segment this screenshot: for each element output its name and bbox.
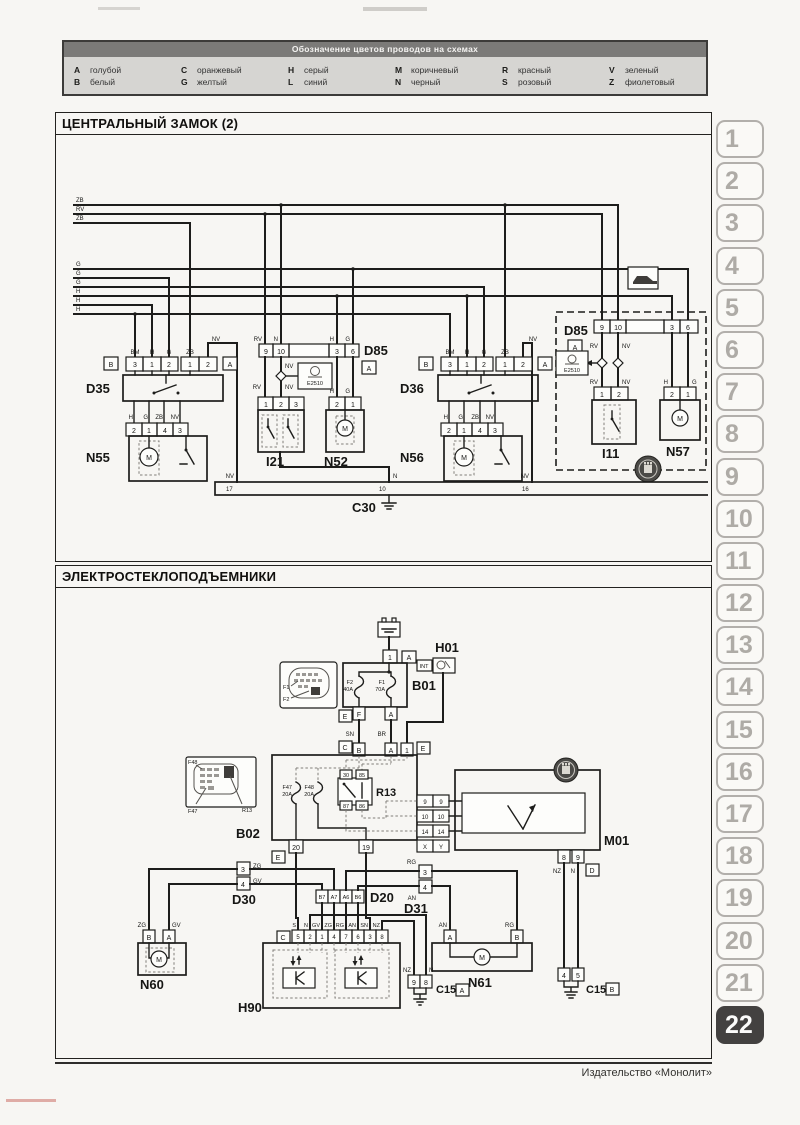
connector-id: A xyxy=(228,362,233,369)
wire-color-label: NV xyxy=(171,415,179,421)
wire-color-label: ZB xyxy=(471,415,479,421)
fuse-rating: 70A xyxy=(375,687,385,693)
color-name: белый xyxy=(90,76,115,88)
publisher-credit: Издательство «Монолит» xyxy=(402,1067,712,1079)
component-name: C15 xyxy=(436,984,456,996)
wire-color-label: G xyxy=(345,389,350,395)
component-name: I11 xyxy=(602,446,619,461)
wire-color-label: G xyxy=(143,415,148,421)
fuse-label: F47 xyxy=(283,785,292,791)
pin-number: 3 xyxy=(423,870,427,877)
component-name: D30 xyxy=(232,892,256,907)
pin-number: 1 xyxy=(351,402,355,409)
chapter-tab-11: 11 xyxy=(716,542,764,580)
pin-number: 1 xyxy=(147,428,151,435)
color-name: коричневый xyxy=(411,64,458,76)
component-h90: S N GV ZG RG AN SN NZ C 5 2 1 4 7 6 3 8 xyxy=(238,923,400,1015)
wire-color-label: SN xyxy=(346,732,354,738)
component-name: R13 xyxy=(376,787,396,799)
pin-number: 3 xyxy=(335,349,339,356)
diagram-title: ЦЕНТРАЛЬНЫЙ ЗАМОК (2) xyxy=(56,113,711,135)
color-name: красный xyxy=(518,64,551,76)
wire-color-label: G xyxy=(345,337,350,343)
component-name: N57 xyxy=(666,444,690,459)
component-name: C30 xyxy=(352,500,376,515)
wire-color-label: NV xyxy=(285,385,293,391)
pin-number: 4 xyxy=(562,973,566,980)
component-n60: ZG GV B A M N60 xyxy=(138,923,186,992)
color-name: зеленый xyxy=(625,64,659,76)
component-name: N55 xyxy=(86,450,110,465)
chapter-tab-10: 10 xyxy=(716,500,764,538)
wire-color-label: G xyxy=(692,380,697,386)
pin-number: 9 xyxy=(576,855,580,862)
pin-number: B6 xyxy=(355,895,362,901)
wire-color-label: H xyxy=(330,389,334,395)
chapter-tab-17: 17 xyxy=(716,795,764,833)
component-b01: F2 40A F1 70A B01 F A E xyxy=(339,663,436,722)
wire-color-label: ZB xyxy=(76,198,84,204)
connector-id: C xyxy=(342,745,347,752)
pin-number: 5 xyxy=(576,973,580,980)
pin-number: 1 xyxy=(264,402,268,409)
connector-id: B xyxy=(424,362,429,369)
chapter-tab-strip: 1 2 3 4 5 6 7 8 9 10 11 12 13 14 15 16 1… xyxy=(716,120,764,1044)
pin-number: 1 xyxy=(405,748,409,755)
chapter-tab-2: 2 xyxy=(716,162,764,200)
chapter-tab-15: 15 xyxy=(716,711,764,749)
ground-icon xyxy=(414,988,426,1005)
component-name: D35 xyxy=(86,381,110,396)
pin-number: 3 xyxy=(493,428,497,435)
ground-icon xyxy=(564,981,578,998)
color-name: синий xyxy=(304,76,327,88)
pin-number: 86 xyxy=(359,804,365,810)
wire-color-label: GV xyxy=(172,923,181,929)
connector-id: A xyxy=(543,362,548,369)
color-code: N xyxy=(395,76,411,88)
chapter-tab-16: 16 xyxy=(716,753,764,791)
component-name: D85 xyxy=(364,343,388,358)
wire-color-label: G xyxy=(167,350,172,356)
component-n55: 2 1 4 3 M N55 xyxy=(86,423,207,481)
color-code: H xyxy=(288,64,304,76)
pin-number: 2 xyxy=(132,428,136,435)
pin-number: B xyxy=(147,935,152,942)
pin-number: 1 xyxy=(465,362,469,369)
pin-number: A xyxy=(167,935,172,942)
pin-number: 85 xyxy=(359,773,365,779)
pin-number: 4 xyxy=(241,882,245,889)
color-code: M xyxy=(395,64,411,76)
pin-number: 8 xyxy=(562,855,566,862)
chapter-tab-22-active: 22 xyxy=(716,1006,764,1044)
central-lock-schematic: ZB RV ZB G G G H H H BM H G ZB NV B 3 1 … xyxy=(56,135,708,559)
fuse-label: F48 xyxy=(188,760,197,766)
component-n56: 2 1 4 3 M N56 xyxy=(400,423,522,481)
pin-number: 3 xyxy=(294,402,298,409)
component-name: H90 xyxy=(238,1000,262,1015)
wire-color-label: H xyxy=(465,350,469,356)
fuse-label: F1 xyxy=(379,680,385,686)
connector-id: B xyxy=(610,987,615,994)
wire-color-label: H xyxy=(330,337,334,343)
pin-number: 17 xyxy=(226,487,233,493)
motor-icon: M xyxy=(677,416,683,423)
pin-number: 10 xyxy=(277,349,285,356)
wire-color-label: NZ xyxy=(373,923,381,929)
connector-id: C xyxy=(280,935,285,942)
pin-number: 16 xyxy=(522,487,529,493)
chapter-tab-3: 3 xyxy=(716,204,764,242)
component-name: N56 xyxy=(400,450,424,465)
pin-number: 4 xyxy=(163,428,167,435)
wire-color-label: NV xyxy=(622,344,630,350)
wire-color-label: ZG xyxy=(138,923,147,929)
color-name: фиолетовый xyxy=(625,76,675,88)
pin-number: 3 xyxy=(241,867,245,874)
wire-color-label: BM xyxy=(131,350,140,356)
pin-number: F xyxy=(357,712,361,719)
chapter-tab-8: 8 xyxy=(716,415,764,453)
chapter-tab-20: 20 xyxy=(716,922,764,960)
component-name: D36 xyxy=(400,381,424,396)
legend-col: Aголубой Bбелый xyxy=(64,64,171,88)
motor-icon: M xyxy=(461,455,467,462)
chapter-tab-12: 12 xyxy=(716,584,764,622)
color-name: черный xyxy=(411,76,440,88)
connector-id: E xyxy=(276,855,281,862)
wire-color-label: NV xyxy=(285,364,293,370)
connector-id: Y xyxy=(439,845,443,851)
connector-id: A xyxy=(460,988,465,995)
color-code: B xyxy=(74,76,90,88)
pin-number: A xyxy=(389,712,394,719)
component-name: C15 xyxy=(586,984,606,996)
component-name: B01 xyxy=(412,678,436,693)
chapter-tab-19: 19 xyxy=(716,879,764,917)
wire-color-label: RV xyxy=(253,385,261,391)
pin-number: 10 xyxy=(379,487,386,493)
chapter-tab-14: 14 xyxy=(716,668,764,706)
bus-wires xyxy=(74,205,688,357)
wire-color-label: G xyxy=(76,262,81,268)
chapter-tab-4: 4 xyxy=(716,247,764,285)
fuse-label: F2 xyxy=(347,680,353,686)
color-code: V xyxy=(609,64,625,76)
fuse-label: F2 xyxy=(283,697,289,703)
wire-color-label: NV xyxy=(622,380,630,386)
ground-icon xyxy=(382,495,396,509)
component-name: M01 xyxy=(604,833,629,848)
wire-color-label: ZB xyxy=(76,216,84,222)
connector-c15a: NZ N 9 8 C15 A xyxy=(403,968,469,1005)
pin-number: A6 xyxy=(343,895,350,901)
wire-color-label: RG xyxy=(336,923,344,929)
connector-id: INT xyxy=(420,664,430,670)
wire-color-label: ZB xyxy=(501,350,509,356)
fuse-rating: 20A xyxy=(282,792,292,798)
wire-color-label: AN xyxy=(439,923,447,929)
publisher-logo-stamp xyxy=(554,758,578,782)
wire-color-label: H xyxy=(76,289,80,295)
pin-number: 8 xyxy=(424,980,428,987)
pin-number: B xyxy=(357,748,362,755)
component-name: N60 xyxy=(140,977,164,992)
fusebox2-location-icon: F48 F47 R13 xyxy=(186,757,256,815)
component-name: D85 xyxy=(564,323,588,338)
fusebox-location-icon: F1 F2 xyxy=(280,662,337,708)
pin-number: 3 xyxy=(178,428,182,435)
fuse-label: F47 xyxy=(188,809,197,815)
connector-id: D xyxy=(589,868,594,875)
chapter-tab-7: 7 xyxy=(716,373,764,411)
pin-number: 2 xyxy=(279,402,283,409)
wire-color-label: BM xyxy=(446,350,455,356)
connector-id: X xyxy=(423,845,427,851)
pin-number: 19 xyxy=(362,845,370,852)
pin-number: 1 xyxy=(600,392,604,399)
pin-number: 1 xyxy=(686,392,690,399)
pin-number: 10 xyxy=(614,325,622,332)
wire-color-label: ZG xyxy=(324,923,332,929)
motor-icon: M xyxy=(342,426,348,433)
pin-number: 2 xyxy=(670,392,674,399)
pin-number: 2 xyxy=(206,362,210,369)
component-name: N52 xyxy=(324,454,348,469)
wire-color-label: NV xyxy=(486,415,494,421)
pin-number: 6 xyxy=(351,349,355,356)
pin-number: B7 xyxy=(319,895,326,901)
diagram-power-windows: ЭЛЕКТРОСТЕКЛОПОДЪЕМНИКИ 1 A F2 40A F1 70… xyxy=(55,565,712,1059)
diagram-title: ЭЛЕКТРОСТЕКЛОПОДЪЕМНИКИ xyxy=(56,566,711,588)
legend-title: Обозначение цветов проводов на схемах xyxy=(64,42,706,57)
b02-input-row: C B A 1 E xyxy=(339,741,430,756)
pin-number: 1 xyxy=(462,428,466,435)
wire-color-label: H xyxy=(129,415,133,421)
chapter-tab-21: 21 xyxy=(716,964,764,1002)
wire-color-label: RV xyxy=(76,207,84,213)
legend-col: Cоранжевый Gжелтый xyxy=(171,64,278,88)
pin-number: 30 xyxy=(343,773,349,779)
pin-number: 1 xyxy=(150,362,154,369)
color-code: A xyxy=(74,64,90,76)
pin-number: B xyxy=(515,935,520,942)
pin-number: 9 xyxy=(264,349,268,356)
wire-color-label: N xyxy=(274,337,278,343)
wire-color-label: ZB xyxy=(155,415,163,421)
connector-id: E xyxy=(343,714,348,721)
fuse-rating: 40A xyxy=(343,687,353,693)
wire-color-label: BR xyxy=(378,732,387,738)
pin-number: 2 xyxy=(335,402,339,409)
connector-id: E xyxy=(421,746,426,753)
pin-number: 14 xyxy=(422,830,429,836)
connector-id: A xyxy=(407,655,412,662)
chapter-tab-9: 9 xyxy=(716,458,764,496)
wire-color-label: NZ xyxy=(403,968,411,974)
pin-number: 3 xyxy=(670,325,674,332)
wire-color-label: NV xyxy=(521,474,529,480)
wire-color-label: G xyxy=(76,280,81,286)
wire-color-label: G xyxy=(458,415,463,421)
color-name: желтый xyxy=(197,76,227,88)
wire-color-label: H xyxy=(664,380,668,386)
pin-number: 4 xyxy=(423,885,427,892)
legend-col: Mкоричневый Nчерный xyxy=(385,64,492,88)
pin-number: A xyxy=(448,935,453,942)
scan-artifact xyxy=(363,7,427,11)
connector-c30: 17 10 16 NV N NV C30 xyxy=(215,474,708,515)
color-code: S xyxy=(502,76,518,88)
connector-c15b: 4 5 C15 B xyxy=(558,968,619,998)
chapter-tab-6: 6 xyxy=(716,331,764,369)
legend-body: Aголубой Bбелый Cоранжевый Gжелтый Hсеры… xyxy=(64,57,706,94)
wire-color-label: ZB xyxy=(186,350,194,356)
component-n61: AN RG A B M N61 xyxy=(432,923,532,990)
pin-number: 6 xyxy=(686,325,690,332)
pin-number: 10 xyxy=(422,815,429,821)
chapter-tab-1: 1 xyxy=(716,120,764,158)
color-name: розовый xyxy=(518,76,551,88)
pin-number: 3 xyxy=(448,362,452,369)
wire-color-label: H xyxy=(76,307,80,313)
wire-color-label: H xyxy=(150,350,154,356)
pin-number: 1 xyxy=(503,362,507,369)
pin-number: 4 xyxy=(478,428,482,435)
pin-number: 87 xyxy=(343,804,349,810)
scan-artifact xyxy=(6,1099,56,1102)
connector-1a: 1 A xyxy=(383,650,416,663)
fuse-rating: 20A xyxy=(304,792,314,798)
wire-color-label: RG xyxy=(505,923,514,929)
publisher-logo-stamp xyxy=(635,456,661,482)
pin-number: 14 xyxy=(438,830,445,836)
wire-color-label: GV xyxy=(312,923,320,929)
legend-col: Vзеленый Zфиолетовый xyxy=(599,64,706,88)
wire-color-label: H xyxy=(444,415,448,421)
connector-id: A xyxy=(367,366,372,373)
pin-number: 2 xyxy=(521,362,525,369)
wire-color-label: RG xyxy=(407,860,416,866)
color-code: G xyxy=(181,76,197,88)
component-i21: 1 2 3 I21 xyxy=(258,397,389,482)
component-name: H01 xyxy=(435,640,459,655)
pin-number: 9 xyxy=(412,980,416,987)
pin-number: 2 xyxy=(482,362,486,369)
wire-color-label: RV xyxy=(590,344,598,350)
color-code: R xyxy=(502,64,518,76)
component-name: N61 xyxy=(468,975,492,990)
wire-color-label: G xyxy=(482,350,487,356)
component-name: E2510 xyxy=(564,368,580,374)
motor-icon: M xyxy=(156,957,162,964)
wire-color-label: N xyxy=(304,923,308,929)
pin-number: 2 xyxy=(447,428,451,435)
motor-icon: M xyxy=(146,455,152,462)
wire-color-legend: Обозначение цветов проводов на схемах Aг… xyxy=(62,40,708,96)
wire-color-label: RV xyxy=(254,337,262,343)
wire-color-label: N xyxy=(393,474,397,480)
component-name: D31 xyxy=(404,901,428,916)
connector-id: B xyxy=(109,362,114,369)
window-switch-icon xyxy=(345,955,377,988)
scanned-manual-page: { "legend": { "title": "Обозначение цвет… xyxy=(0,0,800,1125)
variant-box: D85 A 9 10 3 6 RV NV E2510 RV NV 1 2 xyxy=(556,312,706,482)
chapter-tab-13: 13 xyxy=(716,626,764,664)
battery-icon xyxy=(378,618,400,637)
component-name: B02 xyxy=(236,826,260,841)
component-name: D20 xyxy=(370,890,394,905)
fuse-label: F1 xyxy=(283,685,289,691)
wire-color-label: N xyxy=(571,869,575,875)
chapter-tab-5: 5 xyxy=(716,289,764,327)
wire-color-label: NZ xyxy=(553,869,561,875)
window-switch-icon xyxy=(283,955,315,988)
wire-color-label: H xyxy=(76,298,80,304)
pin-number: 1 xyxy=(388,655,392,662)
pin-number: A7 xyxy=(331,895,338,901)
color-name: серый xyxy=(304,64,329,76)
component-b02: B02 F47 20A F48 20A 30 85 87 86 R13 20 1… xyxy=(236,755,417,863)
wire-color-label: NV xyxy=(226,474,234,480)
wire-color-label: S xyxy=(292,923,296,929)
pin-number: 1 xyxy=(188,362,192,369)
diagram-central-lock: ЦЕНТРАЛЬНЫЙ ЗАМОК (2) ZB RV ZB G G G xyxy=(55,112,712,562)
pin-number: 3 xyxy=(133,362,137,369)
pin-number: 10 xyxy=(438,815,445,821)
fuse-label: F48 xyxy=(305,785,314,791)
footer-rule xyxy=(55,1062,712,1064)
wire-color-label: AN xyxy=(348,923,356,929)
chapter-tab-18: 18 xyxy=(716,837,764,875)
legend-col: Rкрасный Sрозовый xyxy=(492,64,599,88)
pin-number: 9 xyxy=(600,325,604,332)
component-m01: M01 8 9 NZ N D xyxy=(455,758,629,968)
relay-label: R13 xyxy=(242,808,252,814)
connector-d85-mid: RV N H G 9 10 3 6 D85 A NV E2510 RV NV xyxy=(253,337,388,397)
power-windows-schematic: 1 A F2 40A F1 70A B01 F A E xyxy=(56,588,708,1053)
legend-col: Hсерый Lсиний xyxy=(278,64,385,88)
scan-artifact xyxy=(98,7,140,10)
color-name: голубой xyxy=(90,64,121,76)
wire-color-label: SN xyxy=(360,923,368,929)
color-code: C xyxy=(181,64,197,76)
component-name: E2510 xyxy=(307,381,323,387)
wire-color-label: N xyxy=(429,968,433,974)
color-code: Z xyxy=(609,76,625,88)
pin-number: A xyxy=(389,748,394,755)
pin-number: 20 xyxy=(292,845,300,852)
pin-number: 2 xyxy=(617,392,621,399)
wire-color-label: RV xyxy=(590,380,598,386)
motor-icon: M xyxy=(479,955,485,962)
connector-d30: 3 4 ZG GV D30 xyxy=(149,862,334,930)
color-code: L xyxy=(288,76,304,88)
wire-color-label: G xyxy=(76,271,81,277)
pin-number: 2 xyxy=(167,362,171,369)
color-name: оранжевый xyxy=(197,64,242,76)
car-variant-icon xyxy=(628,267,658,289)
